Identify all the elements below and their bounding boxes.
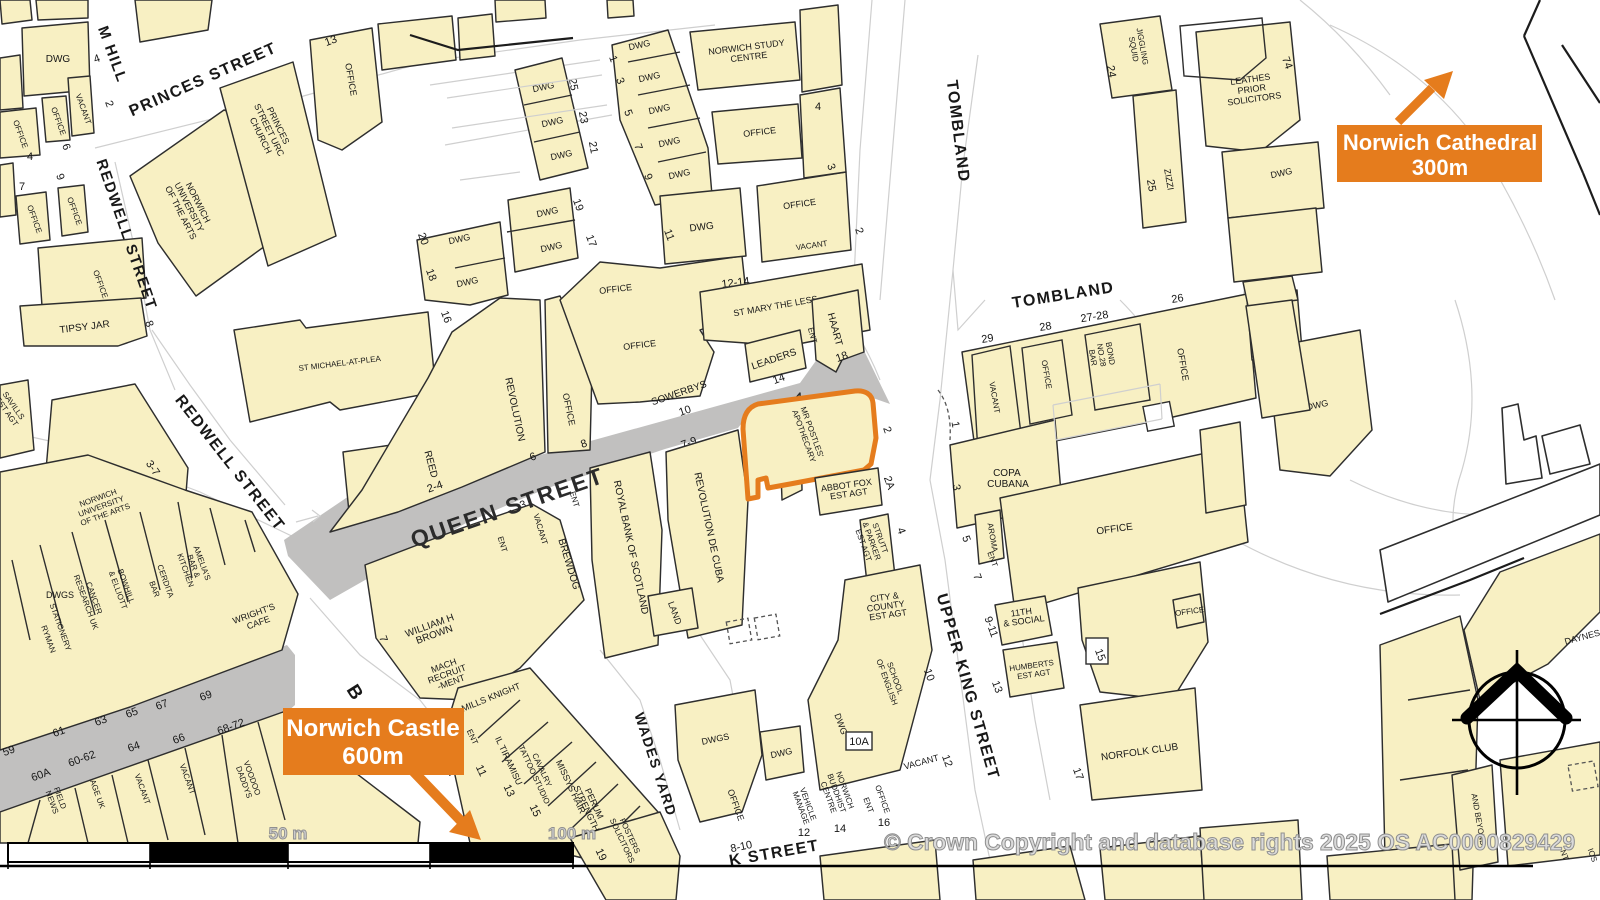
svg-text:100 m: 100 m (548, 824, 596, 843)
svg-text:COPA CUBANA: COPA CUBANA (987, 468, 1029, 490)
svg-text:DWGS: DWGS (46, 590, 74, 600)
svg-text:23: 23 (576, 110, 590, 124)
svg-text:© Crown Copyright and database: © Crown Copyright and database rights 20… (884, 829, 1575, 855)
svg-text:Norwich Castle: Norwich Castle (286, 715, 459, 742)
svg-text:26: 26 (1171, 292, 1185, 306)
svg-text:28: 28 (1039, 320, 1053, 334)
svg-text:4: 4 (27, 151, 33, 163)
svg-text:7: 7 (19, 181, 25, 193)
svg-text:21: 21 (586, 140, 600, 154)
svg-text:300m: 300m (1412, 155, 1468, 180)
svg-text:29: 29 (981, 332, 995, 346)
svg-text:50 m: 50 m (269, 824, 308, 843)
svg-text:DWG: DWG (46, 54, 71, 65)
svg-text:25: 25 (1144, 178, 1158, 192)
svg-text:16: 16 (878, 817, 890, 829)
svg-text:14: 14 (834, 823, 846, 835)
svg-text:24: 24 (1104, 64, 1118, 78)
svg-text:10A: 10A (849, 736, 869, 748)
svg-text:Norwich Cathedral: Norwich Cathedral (1343, 130, 1537, 155)
svg-text:12: 12 (798, 827, 810, 839)
svg-text:600m: 600m (342, 743, 403, 770)
svg-text:4: 4 (815, 101, 821, 113)
